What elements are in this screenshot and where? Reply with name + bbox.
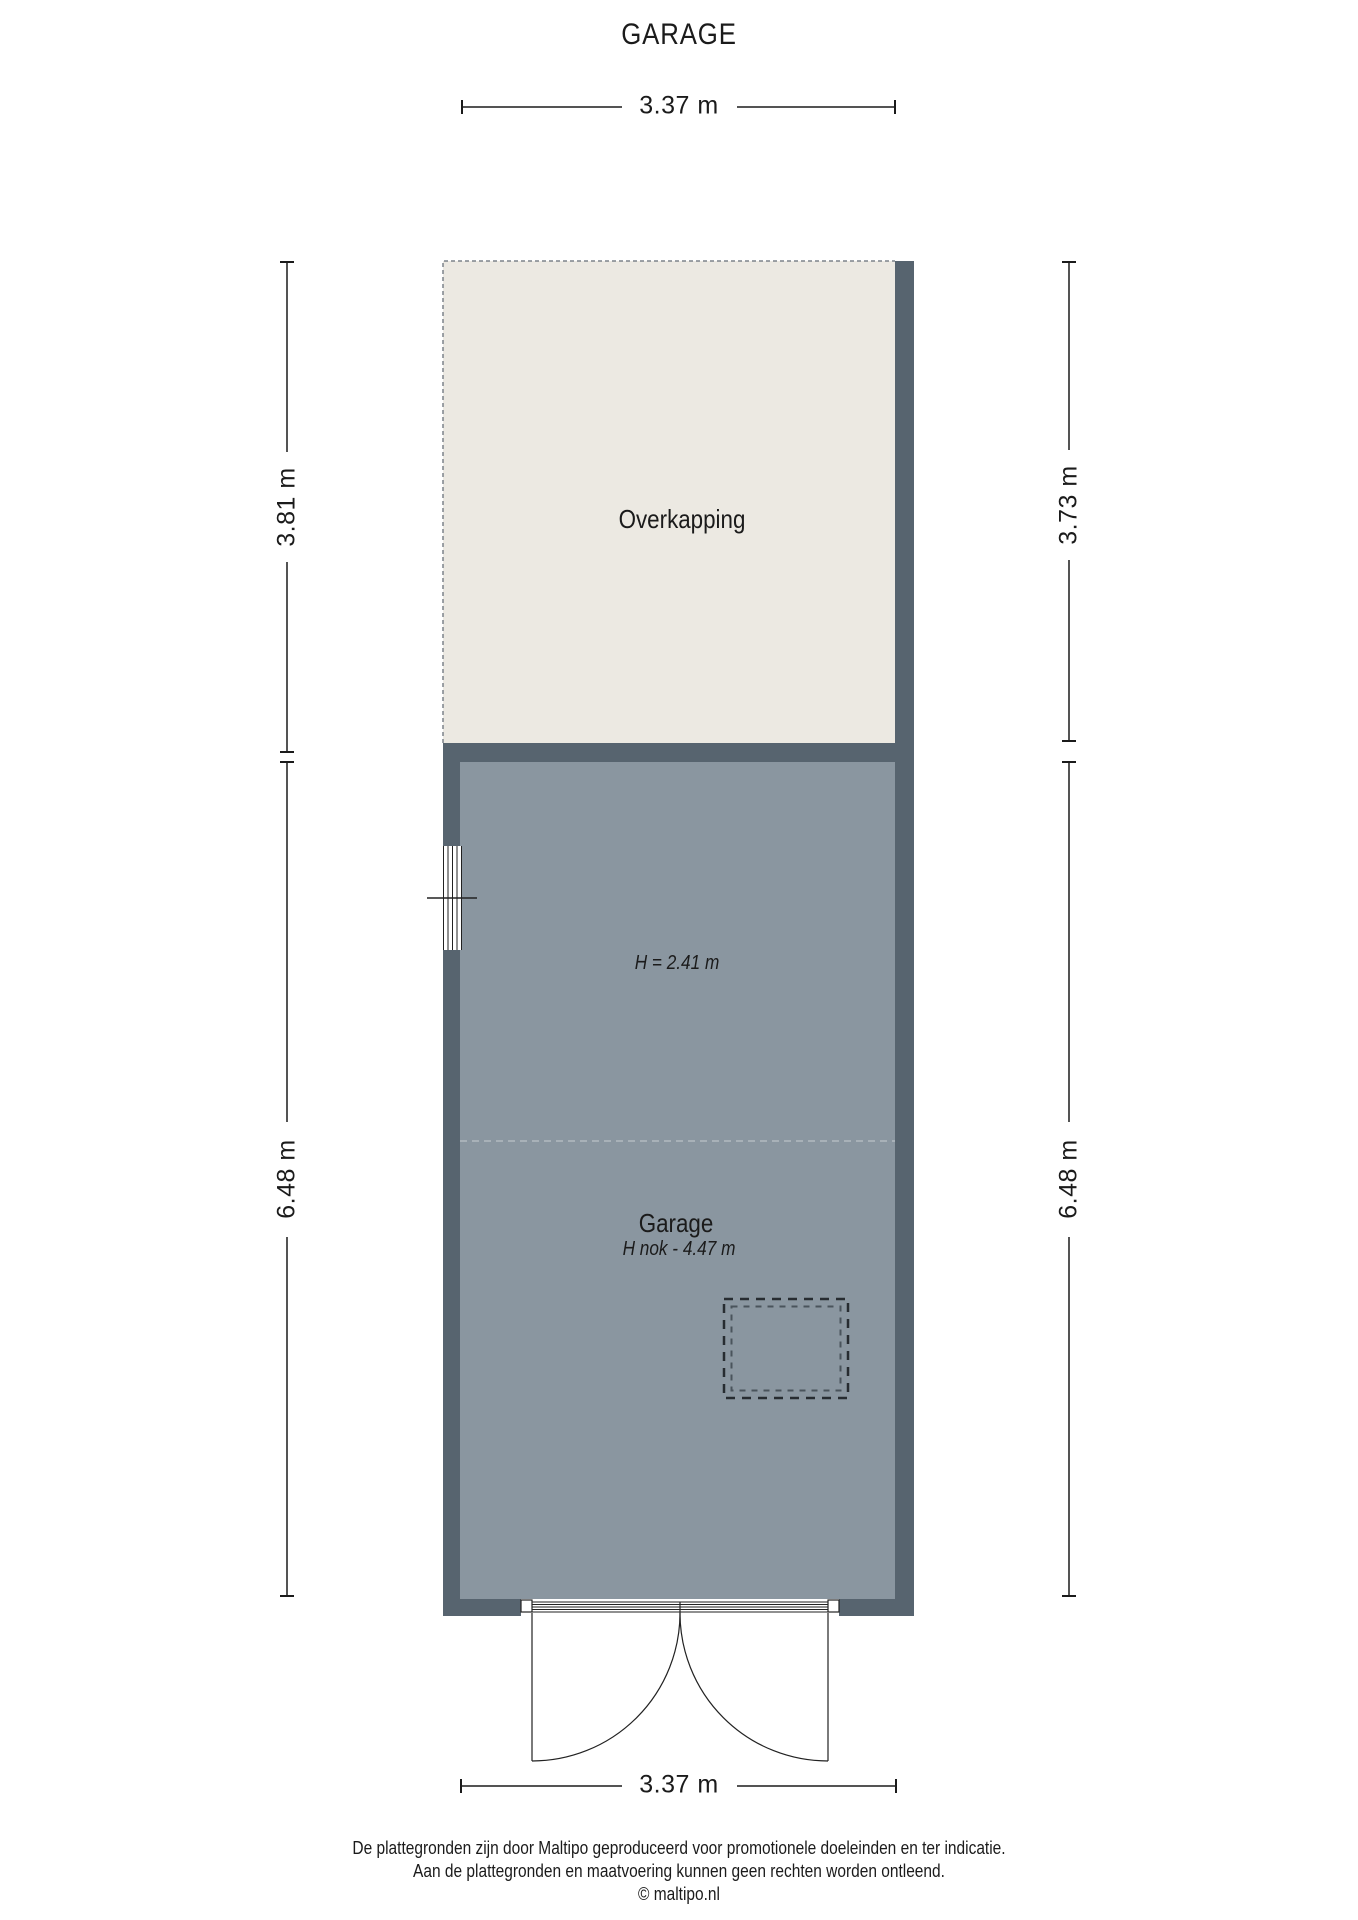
wall-bottom-left-segment: [443, 1599, 521, 1616]
wall-top: [443, 743, 895, 762]
footer-copyright: © maltipo.nl: [638, 1885, 720, 1903]
garage-ceiling-height-note: H = 2.41 m: [635, 953, 720, 973]
wall-bottom-right-segment: [839, 1599, 914, 1616]
overkapping-area: [443, 261, 895, 743]
dimension-label-top: 3.37 m: [639, 94, 718, 119]
dimension-label-right-lower: 6.48 m: [1057, 1139, 1082, 1218]
dimension-label-right-upper: 3.73 m: [1057, 465, 1082, 544]
floorplan-page: GARAGE 3.37 m 3.81 m 3.73 m 6.48 m 6.48 …: [0, 0, 1358, 1920]
dimension-label-bottom: 3.37 m: [639, 1773, 718, 1798]
door-jamb-right: [828, 1600, 839, 1612]
door-jamb-left: [521, 1600, 532, 1612]
room-label-garage: Garage: [639, 1210, 714, 1236]
door-swing-arc-right: [680, 1613, 828, 1761]
page-title: GARAGE: [621, 20, 737, 50]
footer-disclaimer-line-1: De plattegronden zijn door Maltipo gepro…: [352, 1839, 1005, 1857]
room-label-overkapping: Overkapping: [619, 506, 746, 532]
garage-ridge-height-note: H nok - 4.47 m: [623, 1239, 736, 1259]
garage-door-symbol: [521, 1599, 839, 1761]
door-swing-arc-left: [532, 1613, 680, 1761]
footer-disclaimer-line-2: Aan de plattegronden en maatvoering kunn…: [413, 1862, 945, 1880]
wall-right: [895, 261, 914, 1616]
dimension-label-left-lower: 6.48 m: [275, 1139, 300, 1218]
wall-left-lower-segment: [443, 950, 460, 1599]
garage-floor: [460, 762, 895, 1599]
dimension-label-left-upper: 3.81 m: [275, 467, 300, 546]
wall-left-upper-segment: [443, 762, 460, 846]
